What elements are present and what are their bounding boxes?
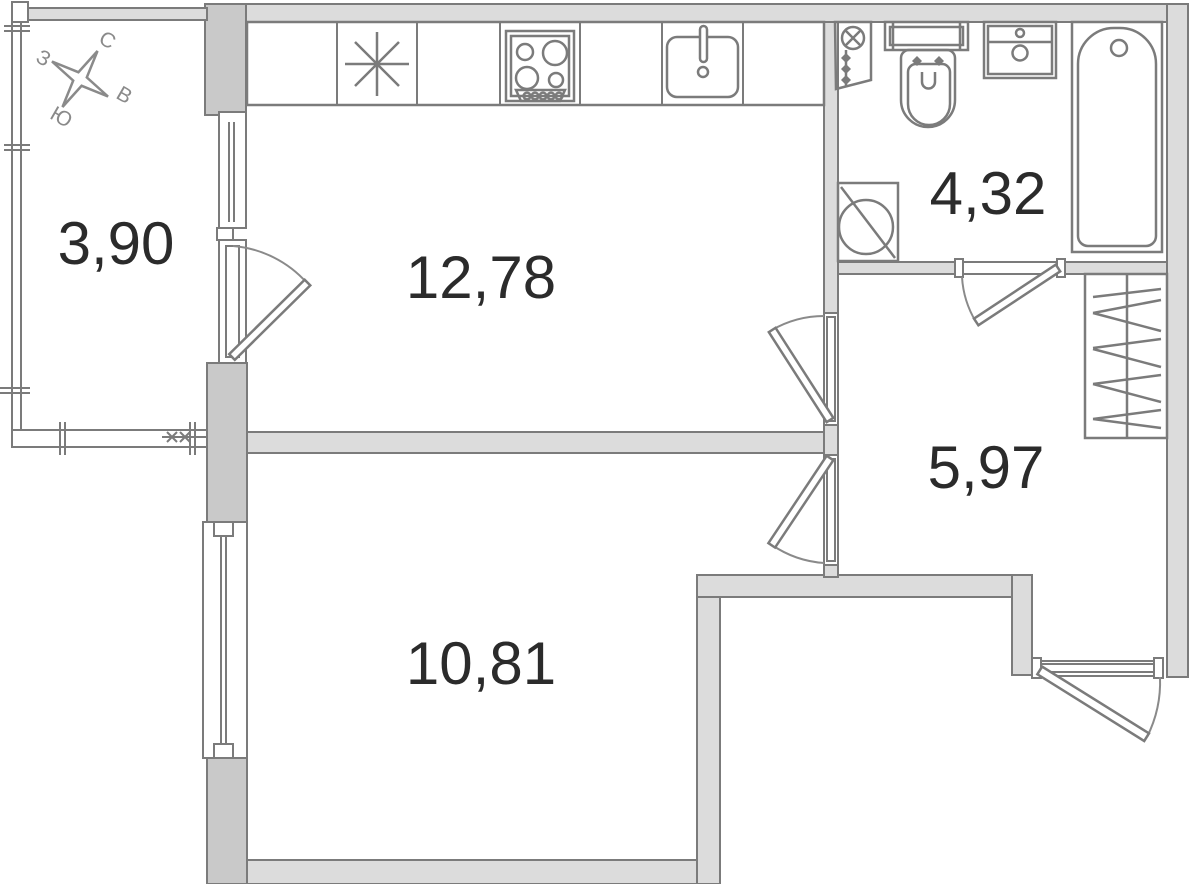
washing-machine-icon	[838, 183, 898, 261]
bathroom-area-label: 4,32	[930, 160, 1047, 227]
entrance-door-jamb-right	[1154, 658, 1163, 678]
wall-kitchen-hall-middle	[824, 425, 838, 455]
floor-plan: С З В Ю 3,90 12,78 4,32 5,97 10,81	[0, 0, 1192, 884]
wall-bottom	[247, 860, 720, 884]
wall-room-right	[697, 595, 720, 884]
bathroom-door-jamb-left	[955, 259, 963, 277]
bathroom-door-swing-arc	[962, 277, 976, 322]
wall-step-vertical	[1012, 575, 1032, 675]
compass-north-label: С	[95, 27, 120, 55]
wall-right	[1167, 4, 1188, 677]
balcony-area-label: 3,90	[58, 210, 175, 277]
wall-left-bottom	[207, 758, 247, 884]
wall-left-mid	[207, 363, 247, 522]
wall-left-pylon	[205, 4, 246, 115]
wall-kitchen-room-partition	[247, 432, 824, 453]
toilet-icon	[885, 22, 968, 127]
balcony-window	[217, 112, 246, 240]
balcony-door[interactable]	[219, 240, 310, 363]
wall-bath-hall-right	[1062, 262, 1167, 274]
room-door[interactable]	[768, 455, 838, 565]
room-door-swing-arc	[772, 545, 824, 563]
faucet-icon	[700, 26, 707, 62]
hallway-area-label: 5,97	[928, 434, 1045, 501]
wall-step-horizontal	[697, 575, 1032, 597]
compass-star-icon	[52, 51, 108, 107]
wall-top	[205, 4, 1188, 22]
balcony-corner-post	[12, 2, 28, 22]
kitchen-area-label: 12,78	[406, 244, 556, 311]
room-window	[203, 522, 247, 758]
entrance-door[interactable]	[1032, 658, 1163, 741]
wall-kitchen-hall-lower	[824, 565, 838, 577]
wardrobe-icon	[1085, 274, 1167, 438]
kitchen-door[interactable]	[769, 313, 838, 425]
entrance-door-leaf[interactable]	[1037, 667, 1149, 741]
bathtub-icon	[1072, 22, 1162, 252]
balcony-top-rail	[28, 8, 207, 20]
plumbing-riser-icon	[835, 22, 871, 89]
kitchen-door-swing-arc	[772, 316, 824, 330]
room-area-label: 10,81	[406, 630, 556, 697]
compass-west-label: З	[32, 45, 54, 71]
washbasin-icon	[984, 22, 1056, 78]
balcony-bottom-glazing	[12, 430, 207, 447]
compass-south-label: Ю	[46, 102, 76, 133]
balcony-left-glazing	[12, 22, 21, 432]
compass-rose: С З В Ю	[32, 27, 136, 133]
compass-east-label: В	[112, 82, 136, 109]
wall-bath-hall-left	[838, 262, 958, 274]
bathroom-door[interactable]	[955, 259, 1065, 325]
entrance-door-swing-arc	[1147, 677, 1160, 737]
